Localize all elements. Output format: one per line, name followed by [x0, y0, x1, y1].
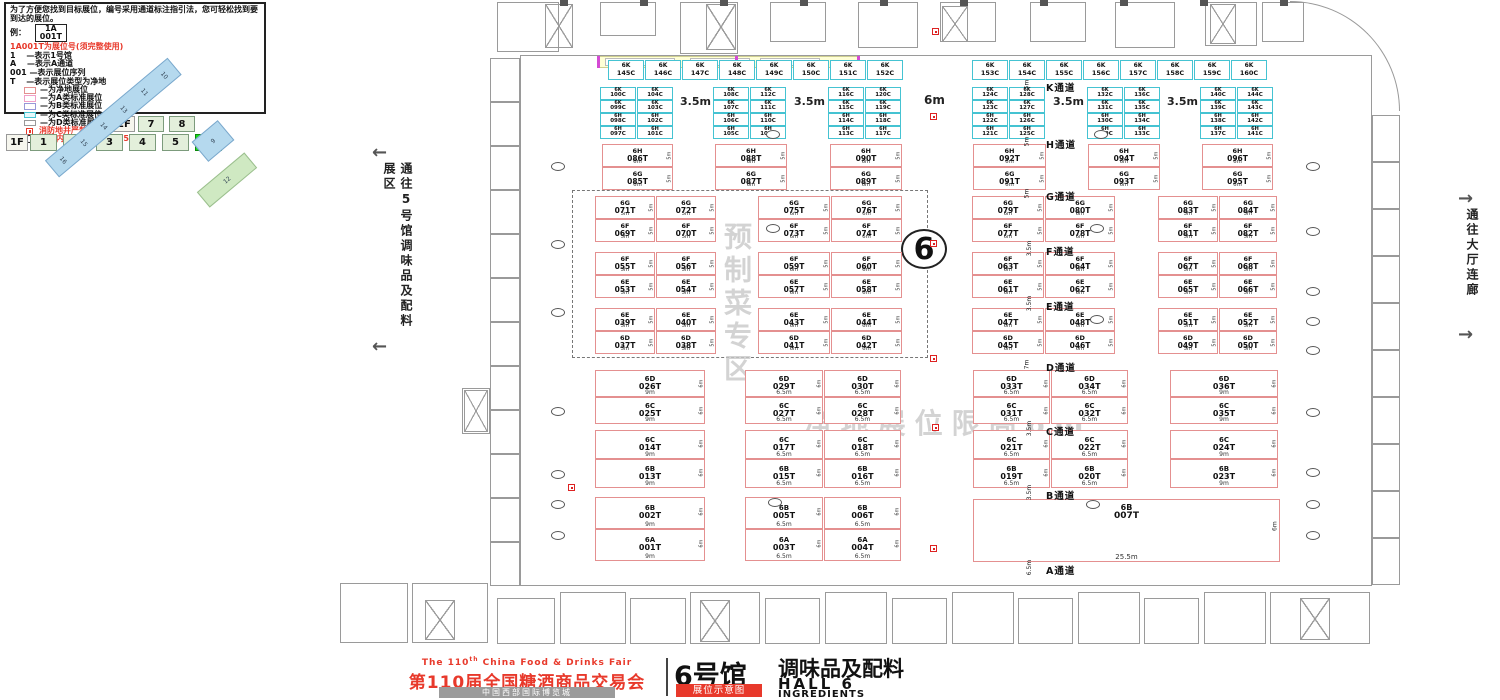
booth-6B-005T[interactable]: 6B005T6.5m6m — [745, 497, 823, 529]
booth-id-number: 131C — [1097, 106, 1113, 112]
booth-width-label: 6m — [1046, 212, 1114, 218]
booth-depth-label: 5m — [896, 316, 901, 324]
booth-width-label: 9m — [596, 417, 704, 423]
booth-6H-142C[interactable]: 6H142C — [1237, 113, 1273, 126]
booth-id-number: 126C — [1019, 119, 1035, 125]
booth-6E-039T[interactable]: 6E039T5m5m — [595, 308, 655, 331]
booth-width-label: 5m — [1220, 268, 1276, 274]
booth-6E-058T[interactable]: 6E058T6m5m — [831, 275, 902, 298]
booth-width-label: 5m — [1159, 235, 1217, 241]
booth-6F-056T[interactable]: 6F056T5m5m — [656, 252, 716, 275]
booth-id-number: 150C — [802, 70, 820, 77]
booth-6H-126C[interactable]: 6H126C — [1009, 113, 1045, 126]
booth-6G-089T[interactable]: 6G089T6m5m — [830, 167, 902, 190]
booth-6K-140C[interactable]: 6K140C — [1200, 87, 1236, 100]
booth-depth-label: 6m — [699, 379, 704, 387]
pillar-icon — [766, 130, 780, 139]
pillar-icon — [1090, 224, 1104, 233]
booth-width-label: 6m — [973, 268, 1043, 274]
booth-width-label: 5m — [657, 268, 715, 274]
booth-id-number: 002T — [639, 512, 661, 520]
booth-6F-060T[interactable]: 6F060T6m5m — [831, 252, 902, 275]
booth-6H-113C[interactable]: 6H113C — [828, 126, 864, 139]
booth-6K-159C[interactable]: 6K159C — [1194, 60, 1230, 80]
booth-depth-label: 5m — [710, 227, 715, 235]
booth-6F-078T[interactable]: 6F078T6m5m — [1045, 219, 1115, 242]
booth-6C-028T[interactable]: 6C028T6.5m6m — [824, 397, 901, 424]
booth-6H-118C[interactable]: 6H118C — [865, 113, 901, 126]
booth-6K-139C[interactable]: 6K139C — [1200, 100, 1236, 113]
booth-id-number: 105C — [723, 132, 739, 138]
booth-6H-096T[interactable]: 6H096T6m5m — [1202, 144, 1273, 167]
building-structure — [1372, 538, 1400, 585]
booth-6K-107C[interactable]: 6K107C — [713, 100, 749, 113]
booth-depth-label: 6m — [817, 440, 822, 448]
booth-6B-002T[interactable]: 6B002T9m6m — [595, 497, 705, 529]
booth-6H-130C[interactable]: 6H130C — [1087, 113, 1123, 126]
booth-depth-label: 5m — [1154, 175, 1159, 183]
booth-6K-131C[interactable]: 6K131C — [1087, 100, 1123, 113]
building-structure — [1372, 303, 1400, 350]
booth-id-number: 137C — [1210, 132, 1226, 138]
booth-6D-030T[interactable]: 6D030T6.5m6m — [824, 370, 901, 397]
fair-name-en-rest: China Food & Drinks Fair — [479, 658, 633, 668]
booth-width-label: 6m — [1046, 324, 1114, 330]
booth-6G-075T[interactable]: 6G075T6m5m — [758, 196, 830, 219]
booth-depth-label: 5m — [824, 339, 829, 347]
booth-width-label: 5m — [657, 324, 715, 330]
aisle-label-A: A通道 — [1046, 563, 1075, 577]
booth-id-number: 152C — [876, 70, 894, 77]
booth-depth-label: 5m — [1271, 339, 1276, 347]
booth-id-number: 157C — [1129, 70, 1147, 77]
booth-6E-054T[interactable]: 6E054T5m5m — [656, 275, 716, 298]
building-structure — [490, 410, 520, 454]
booth-6F-055T[interactable]: 6F055T5m5m — [595, 252, 655, 275]
booth-depth-label: 5m — [649, 204, 654, 212]
booth-6K-153C[interactable]: 6K153C — [972, 60, 1008, 80]
booth-id-number: 155C — [1055, 70, 1073, 77]
booth-depth-label: 5m — [896, 227, 901, 235]
booth-6B-006T[interactable]: 6B006T6.5m6m — [824, 497, 901, 529]
booth-id-number: 127C — [1019, 106, 1035, 112]
booth-id-number: 103C — [647, 106, 663, 112]
stairs-icon — [700, 600, 730, 642]
booth-id-number: 118C — [875, 119, 891, 125]
booth-width-label: 6m — [973, 347, 1043, 353]
booth-6E-051T[interactable]: 6E051T5m5m — [1158, 308, 1218, 331]
booth-6D-050T[interactable]: 6D050T5m5m — [1219, 331, 1277, 354]
booth-6C-014T[interactable]: 6C014T9m6m — [595, 430, 705, 459]
booth-6F-074T[interactable]: 6F074T6m5m — [831, 219, 902, 242]
booth-6B-023T[interactable]: 6B023T9m6m — [1170, 459, 1278, 488]
booth-6E-057T[interactable]: 6E057T6m5m — [758, 275, 830, 298]
hall-title-en2: INGREDIENTS — [778, 689, 865, 700]
booth-6D-049T[interactable]: 6D049T5m5m — [1158, 331, 1218, 354]
booth-width-label: 6m — [716, 160, 786, 166]
booth-depth-label: 5m — [896, 339, 901, 347]
booth-6K-154C[interactable]: 6K154C — [1009, 60, 1045, 80]
booth-6K-149C[interactable]: 6K149C — [756, 60, 792, 80]
booth-id-number: 153C — [981, 70, 999, 77]
booth-6H-106C[interactable]: 6H106C — [713, 113, 749, 126]
booth-depth-label: 5m — [1109, 283, 1114, 291]
booth-6D-037T[interactable]: 6D037T5m5m — [595, 331, 655, 354]
booth-6C-035T[interactable]: 6C035T9m6m — [1170, 397, 1278, 424]
booth-6F-059T[interactable]: 6F059T6m5m — [758, 252, 830, 275]
booth-depth-label: 5m — [824, 227, 829, 235]
building-structure — [892, 598, 947, 644]
booth-6H-097C[interactable]: 6H097C — [600, 126, 636, 139]
booth-depth-label: 5m — [649, 227, 654, 235]
booth-6A-004T[interactable]: 6A004T6.5m6m — [824, 529, 901, 561]
booth-6F-070T[interactable]: 6F070T5m5m — [656, 219, 716, 242]
booth-6K-145C[interactable]: 6K145C — [608, 60, 644, 80]
booth-6D-036T[interactable]: 6D036T9m6m — [1170, 370, 1278, 397]
booth-6E-047T[interactable]: 6E047T6m5m — [972, 308, 1044, 331]
booth-6K-104C[interactable]: 6K104C — [637, 87, 673, 100]
booth-6K-144C[interactable]: 6K144C — [1237, 87, 1273, 100]
booth-6E-043T[interactable]: 6E043T6m5m — [758, 308, 830, 331]
booth-depth-label: 5m — [1109, 227, 1114, 235]
column-marker — [720, 0, 728, 6]
booth-width-label: 9m — [1171, 417, 1277, 423]
booth-6K-124C[interactable]: 6K124C — [972, 87, 1008, 100]
booth-depth-label: 5m — [1038, 227, 1043, 235]
booth-width-label: 6.5m — [825, 390, 900, 396]
booth-depth-label: 6m — [895, 469, 900, 477]
booth-depth-label: 6m — [817, 540, 822, 548]
booth-6C-018T[interactable]: 6C018T6.5m6m — [824, 430, 901, 459]
booth-6G-093T[interactable]: 6G093T6m5m — [1088, 167, 1160, 190]
booth-id-number: 097C — [610, 132, 626, 138]
booth-id-number: 158C — [1166, 70, 1184, 77]
pillar-icon — [1306, 468, 1320, 477]
booth-6D-042T[interactable]: 6D042T6m5m — [831, 331, 902, 354]
booth-width-label: 6.5m — [825, 417, 900, 423]
booth-6D-045T[interactable]: 6D045T6m5m — [972, 331, 1044, 354]
booth-6K-155C[interactable]: 6K155C — [1046, 60, 1082, 80]
booth-depth-label: 6m — [1122, 379, 1127, 387]
booth-6E-044T[interactable]: 6E044T6m5m — [831, 308, 902, 331]
booth-6B-019T[interactable]: 6B019T6.5m6m — [973, 459, 1050, 488]
booth-6H-133C[interactable]: 6H133C — [1124, 126, 1160, 139]
aisle-dim-label: 5m — [1023, 189, 1030, 199]
booth-6K-151C[interactable]: 6K151C — [830, 60, 866, 80]
booth-width-label: 5m — [1220, 291, 1276, 297]
booth-6B-007T[interactable]: 6B007T25.5m6m — [973, 499, 1280, 562]
booth-6D-038T[interactable]: 6D038T5m5m — [656, 331, 716, 354]
booth-6G-095T[interactable]: 6G095T6m5m — [1202, 167, 1273, 190]
booth-width-label: 9m — [1171, 452, 1277, 458]
booth-6F-069T[interactable]: 6F069T5m5m — [595, 219, 655, 242]
booth-6H-110C[interactable]: 6H110C — [750, 113, 786, 126]
booth-width-label: 5m — [596, 212, 654, 218]
booth-6H-141C[interactable]: 6H141C — [1237, 126, 1273, 139]
booth-6K-160C[interactable]: 6K160C — [1231, 60, 1267, 80]
booth-width-label: 6m — [1046, 235, 1114, 241]
booth-6K-099C[interactable]: 6K099C — [600, 100, 636, 113]
aisle-dim-label: 5m — [1023, 137, 1030, 147]
booth-depth-label: 6m — [1044, 440, 1049, 448]
booth-width-label: 6m — [832, 268, 901, 274]
booth-id-number: 128C — [1019, 93, 1035, 99]
booth-6C-027T[interactable]: 6C027T6.5m6m — [745, 397, 823, 424]
booth-6H-101C[interactable]: 6H101C — [637, 126, 673, 139]
booth-6E-065T[interactable]: 6E065T5m5m — [1158, 275, 1218, 298]
booth-id-number: 145C — [617, 70, 635, 77]
booth-6K-148C[interactable]: 6K148C — [719, 60, 755, 80]
booth-width-label: 25.5m — [974, 554, 1279, 561]
building-structure — [490, 454, 520, 498]
venue-name: 中国西部国际博览城 — [439, 687, 615, 698]
booth-6E-062T[interactable]: 6E062T6m5m — [1045, 275, 1115, 298]
booth-id-number: 138C — [1210, 119, 1226, 125]
fire-hydrant-icon — [932, 28, 939, 35]
booth-id-number: 123C — [982, 106, 998, 112]
booth-6K-100C[interactable]: 6K100C — [600, 87, 636, 100]
booth-width-label: 6.5m — [746, 390, 822, 396]
booth-6H-114C[interactable]: 6H114C — [828, 113, 864, 126]
booth-6G-085T[interactable]: 6G085T6m5m — [602, 167, 673, 190]
booth-width-label: 6.5m — [746, 522, 822, 528]
booth-id-number: 110C — [760, 119, 776, 125]
column-marker — [1040, 0, 1048, 6]
booth-6F-081T[interactable]: 6F081T5m5m — [1158, 219, 1218, 242]
booth-6K-120C[interactable]: 6K120C — [865, 87, 901, 100]
booth-depth-label: 5m — [710, 283, 715, 291]
pillar-icon — [1306, 531, 1320, 540]
booth-6G-076T[interactable]: 6G076T6m5m — [831, 196, 902, 219]
booth-6G-072T[interactable]: 6G072T5m5m — [656, 196, 716, 219]
booth-6K-157C[interactable]: 6K157C — [1120, 60, 1156, 80]
booth-6B-015T[interactable]: 6B015T6.5m6m — [745, 459, 823, 488]
building-structure — [952, 592, 1014, 644]
booth-6C-032T[interactable]: 6C032T6.5m6m — [1051, 397, 1128, 424]
booth-id-number: 132C — [1097, 93, 1113, 99]
booth-width-label: 5m — [1159, 347, 1217, 353]
booth-6H-094T[interactable]: 6H094T6m5m — [1088, 144, 1160, 167]
pillar-icon — [768, 498, 782, 507]
booth-width-label: 5m — [1159, 324, 1217, 330]
booth-6C-025T[interactable]: 6C025T9m6m — [595, 397, 705, 424]
booth-6K-127C[interactable]: 6K127C — [1009, 100, 1045, 113]
booth-6C-017T[interactable]: 6C017T6.5m6m — [745, 430, 823, 459]
building-structure — [490, 146, 520, 190]
booth-width-label: 6m — [832, 291, 901, 297]
column-marker — [1120, 0, 1128, 6]
booth-depth-label: 5m — [1267, 175, 1272, 183]
booth-6F-068T[interactable]: 6F068T5m5m — [1219, 252, 1277, 275]
booth-6K-135C[interactable]: 6K135C — [1124, 100, 1160, 113]
booth-width-label: 9m — [596, 554, 704, 560]
booth-6K-103C[interactable]: 6K103C — [637, 100, 673, 113]
booth-id-number: 144C — [1247, 93, 1263, 99]
booth-depth-label: 6m — [1044, 406, 1049, 414]
booth-depth-label: 5m — [1271, 204, 1276, 212]
stairs-icon — [942, 6, 968, 42]
booth-width-label: 6m — [974, 160, 1045, 166]
footer-title-block: The 110th China Food & Drinks Fair 第110届… — [0, 652, 1500, 700]
booth-6B-020T[interactable]: 6B020T6.5m6m — [1051, 459, 1128, 488]
booth-6K-119C[interactable]: 6K119C — [865, 100, 901, 113]
booth-6G-071T[interactable]: 6G071T5m5m — [595, 196, 655, 219]
building-structure — [1372, 256, 1400, 303]
booth-width-label: 5m — [1220, 347, 1276, 353]
booth-depth-label: 5m — [1038, 283, 1043, 291]
pillar-icon — [1094, 130, 1108, 139]
booth-6B-016T[interactable]: 6B016T6.5m6m — [824, 459, 901, 488]
booth-6H-088T[interactable]: 6H088T6m5m — [715, 144, 787, 167]
booth-depth-label: 5m — [649, 316, 654, 324]
booth-width-label: 6m — [603, 183, 672, 189]
building-structure — [1372, 209, 1400, 256]
booth-6K-158C[interactable]: 6K158C — [1157, 60, 1193, 80]
booth-6F-067T[interactable]: 6F067T5m5m — [1158, 252, 1218, 275]
booth-6K-147C[interactable]: 6K147C — [682, 60, 718, 80]
booth-6F-077T[interactable]: 6F077T6m5m — [972, 219, 1044, 242]
aisle-width-label: 6m — [924, 93, 945, 107]
booth-6C-021T[interactable]: 6C021T6.5m6m — [973, 430, 1050, 459]
booth-depth-label: 5m — [1267, 152, 1272, 160]
booth-6B-013T[interactable]: 6B013T9m6m — [595, 459, 705, 488]
booth-6K-108C[interactable]: 6K108C — [713, 87, 749, 100]
booth-id-number: 146C — [654, 70, 672, 77]
booth-6E-066T[interactable]: 6E066T5m5m — [1219, 275, 1277, 298]
building-structure — [490, 190, 520, 234]
booth-6K-143C[interactable]: 6K143C — [1237, 100, 1273, 113]
booth-6H-090T[interactable]: 6H090T6m5m — [830, 144, 902, 167]
booth-6A-003T[interactable]: 6A003T6.5m6m — [745, 529, 823, 561]
building-structure — [1372, 397, 1400, 444]
stairs-icon — [425, 600, 455, 640]
booth-width-label: 6.5m — [746, 417, 822, 423]
column-marker — [640, 0, 648, 6]
booth-6G-091T[interactable]: 6G091T6m5m — [973, 167, 1046, 190]
booth-6H-134C[interactable]: 6H134C — [1124, 113, 1160, 126]
booth-6C-031T[interactable]: 6C031T6.5m6m — [973, 397, 1050, 424]
pillar-icon — [551, 531, 565, 540]
aisle-dim-label: 6.5m — [1026, 560, 1033, 575]
aisle-width-label: 3.5m — [680, 95, 711, 108]
booth-6K-116C[interactable]: 6K116C — [828, 87, 864, 100]
booth-6H-086T[interactable]: 6H086T6m5m — [602, 144, 673, 167]
booth-width-label: 5m — [1159, 268, 1217, 274]
booth-depth-label: 5m — [667, 152, 672, 160]
booth-6K-115C[interactable]: 6K115C — [828, 100, 864, 113]
stairs-icon — [1300, 598, 1330, 640]
booth-id-number: 115C — [838, 106, 854, 112]
booth-6G-083T[interactable]: 6G083T5m5m — [1158, 196, 1218, 219]
booth-id-number: 006T — [851, 512, 873, 520]
booth-6E-052T[interactable]: 6E052T5m5m — [1219, 308, 1277, 331]
booth-depth-label: 5m — [1109, 316, 1114, 324]
booth-6H-117C[interactable]: 6H117C — [865, 126, 901, 139]
booth-6H-092T[interactable]: 6H092T6m5m — [973, 144, 1046, 167]
booth-depth-label: 5m — [781, 175, 786, 183]
booth-6F-082T[interactable]: 6F082T5m5m — [1219, 219, 1277, 242]
booth-6K-150C[interactable]: 6K150C — [793, 60, 829, 80]
booth-id-number: 141C — [1247, 132, 1263, 138]
booth-id-number: 143C — [1247, 106, 1263, 112]
booth-id-number: 130C — [1097, 119, 1113, 125]
booth-6E-040T[interactable]: 6E040T5m5m — [656, 308, 716, 331]
booth-6C-024T[interactable]: 6C024T9m6m — [1170, 430, 1278, 459]
booth-6E-053T[interactable]: 6E053T5m5m — [595, 275, 655, 298]
booth-6G-087T[interactable]: 6G087T6m5m — [715, 167, 787, 190]
booth-depth-label: 5m — [824, 283, 829, 291]
booth-6D-034T[interactable]: 6D034T6.5m6m — [1051, 370, 1128, 397]
booth-6G-084T[interactable]: 6G084T5m5m — [1219, 196, 1277, 219]
booth-width-label: 6m — [1203, 160, 1272, 166]
booth-depth-label: 5m — [1271, 283, 1276, 291]
booth-6A-001T[interactable]: 6A001T9m6m — [595, 529, 705, 561]
booth-depth-label: 6m — [1044, 379, 1049, 387]
booth-6E-061T[interactable]: 6E061T6m5m — [972, 275, 1044, 298]
booth-6H-105C[interactable]: 6H105C — [713, 126, 749, 139]
fire-hydrant-icon — [930, 355, 937, 362]
booth-6K-112C[interactable]: 6K112C — [750, 87, 786, 100]
building-structure — [1372, 162, 1400, 209]
zone-watermark: 预制菜专区 — [716, 222, 756, 387]
booth-width-label: 6m — [832, 235, 901, 241]
booth-depth-label: 6m — [895, 440, 900, 448]
plan-badge: 展位示意图 — [676, 684, 762, 697]
booth-id-number: 159C — [1203, 70, 1221, 77]
building-structure — [858, 2, 918, 48]
booth-6D-029T[interactable]: 6D029T6.5m6m — [745, 370, 823, 397]
booth-6K-152C[interactable]: 6K152C — [867, 60, 903, 80]
booth-id-number: 116C — [838, 93, 854, 99]
building-structure — [490, 234, 520, 278]
booth-6K-123C[interactable]: 6K123C — [972, 100, 1008, 113]
fire-hydrant-icon — [930, 240, 937, 247]
booth-id-number: 101C — [647, 132, 663, 138]
booth-depth-label: 5m — [1040, 175, 1045, 183]
booth-6D-033T[interactable]: 6D033T6.5m6m — [973, 370, 1050, 397]
booth-width-label: 9m — [596, 452, 704, 458]
building-structure — [340, 583, 408, 643]
booth-width-label: 6m — [832, 347, 901, 353]
building-structure — [1115, 2, 1175, 48]
building-structure — [1372, 115, 1400, 162]
booth-id-number: 108C — [723, 93, 739, 99]
booth-6D-026T[interactable]: 6D026T9m6m — [595, 370, 705, 397]
booth-6K-146C[interactable]: 6K146C — [645, 60, 681, 80]
booth-6H-122C[interactable]: 6H122C — [972, 113, 1008, 126]
booth-id-number: 119C — [875, 106, 891, 112]
building-structure — [490, 278, 520, 322]
booth-depth-label: 5m — [1212, 260, 1217, 268]
booth-6K-136C[interactable]: 6K136C — [1124, 87, 1160, 100]
booth-6H-137C[interactable]: 6H137C — [1200, 126, 1236, 139]
booth-depth-label: 5m — [649, 283, 654, 291]
booth-6K-156C[interactable]: 6K156C — [1083, 60, 1119, 80]
booth-6K-132C[interactable]: 6K132C — [1087, 87, 1123, 100]
stairs-icon — [706, 4, 736, 50]
booth-6K-111C[interactable]: 6K111C — [750, 100, 786, 113]
booth-depth-label: 5m — [649, 339, 654, 347]
booth-6G-079T[interactable]: 6G079T6m5m — [972, 196, 1044, 219]
booth-6D-046T[interactable]: 6D046T6m5m — [1045, 331, 1115, 354]
booth-6H-138C[interactable]: 6H138C — [1200, 113, 1236, 126]
booth-6H-102C[interactable]: 6H102C — [637, 113, 673, 126]
booth-6H-098C[interactable]: 6H098C — [600, 113, 636, 126]
booth-width-label: 5m — [657, 347, 715, 353]
booth-6D-041T[interactable]: 6D041T6m5m — [758, 331, 830, 354]
booth-6H-121C[interactable]: 6H121C — [972, 126, 1008, 139]
booth-id-number: 124C — [982, 93, 998, 99]
